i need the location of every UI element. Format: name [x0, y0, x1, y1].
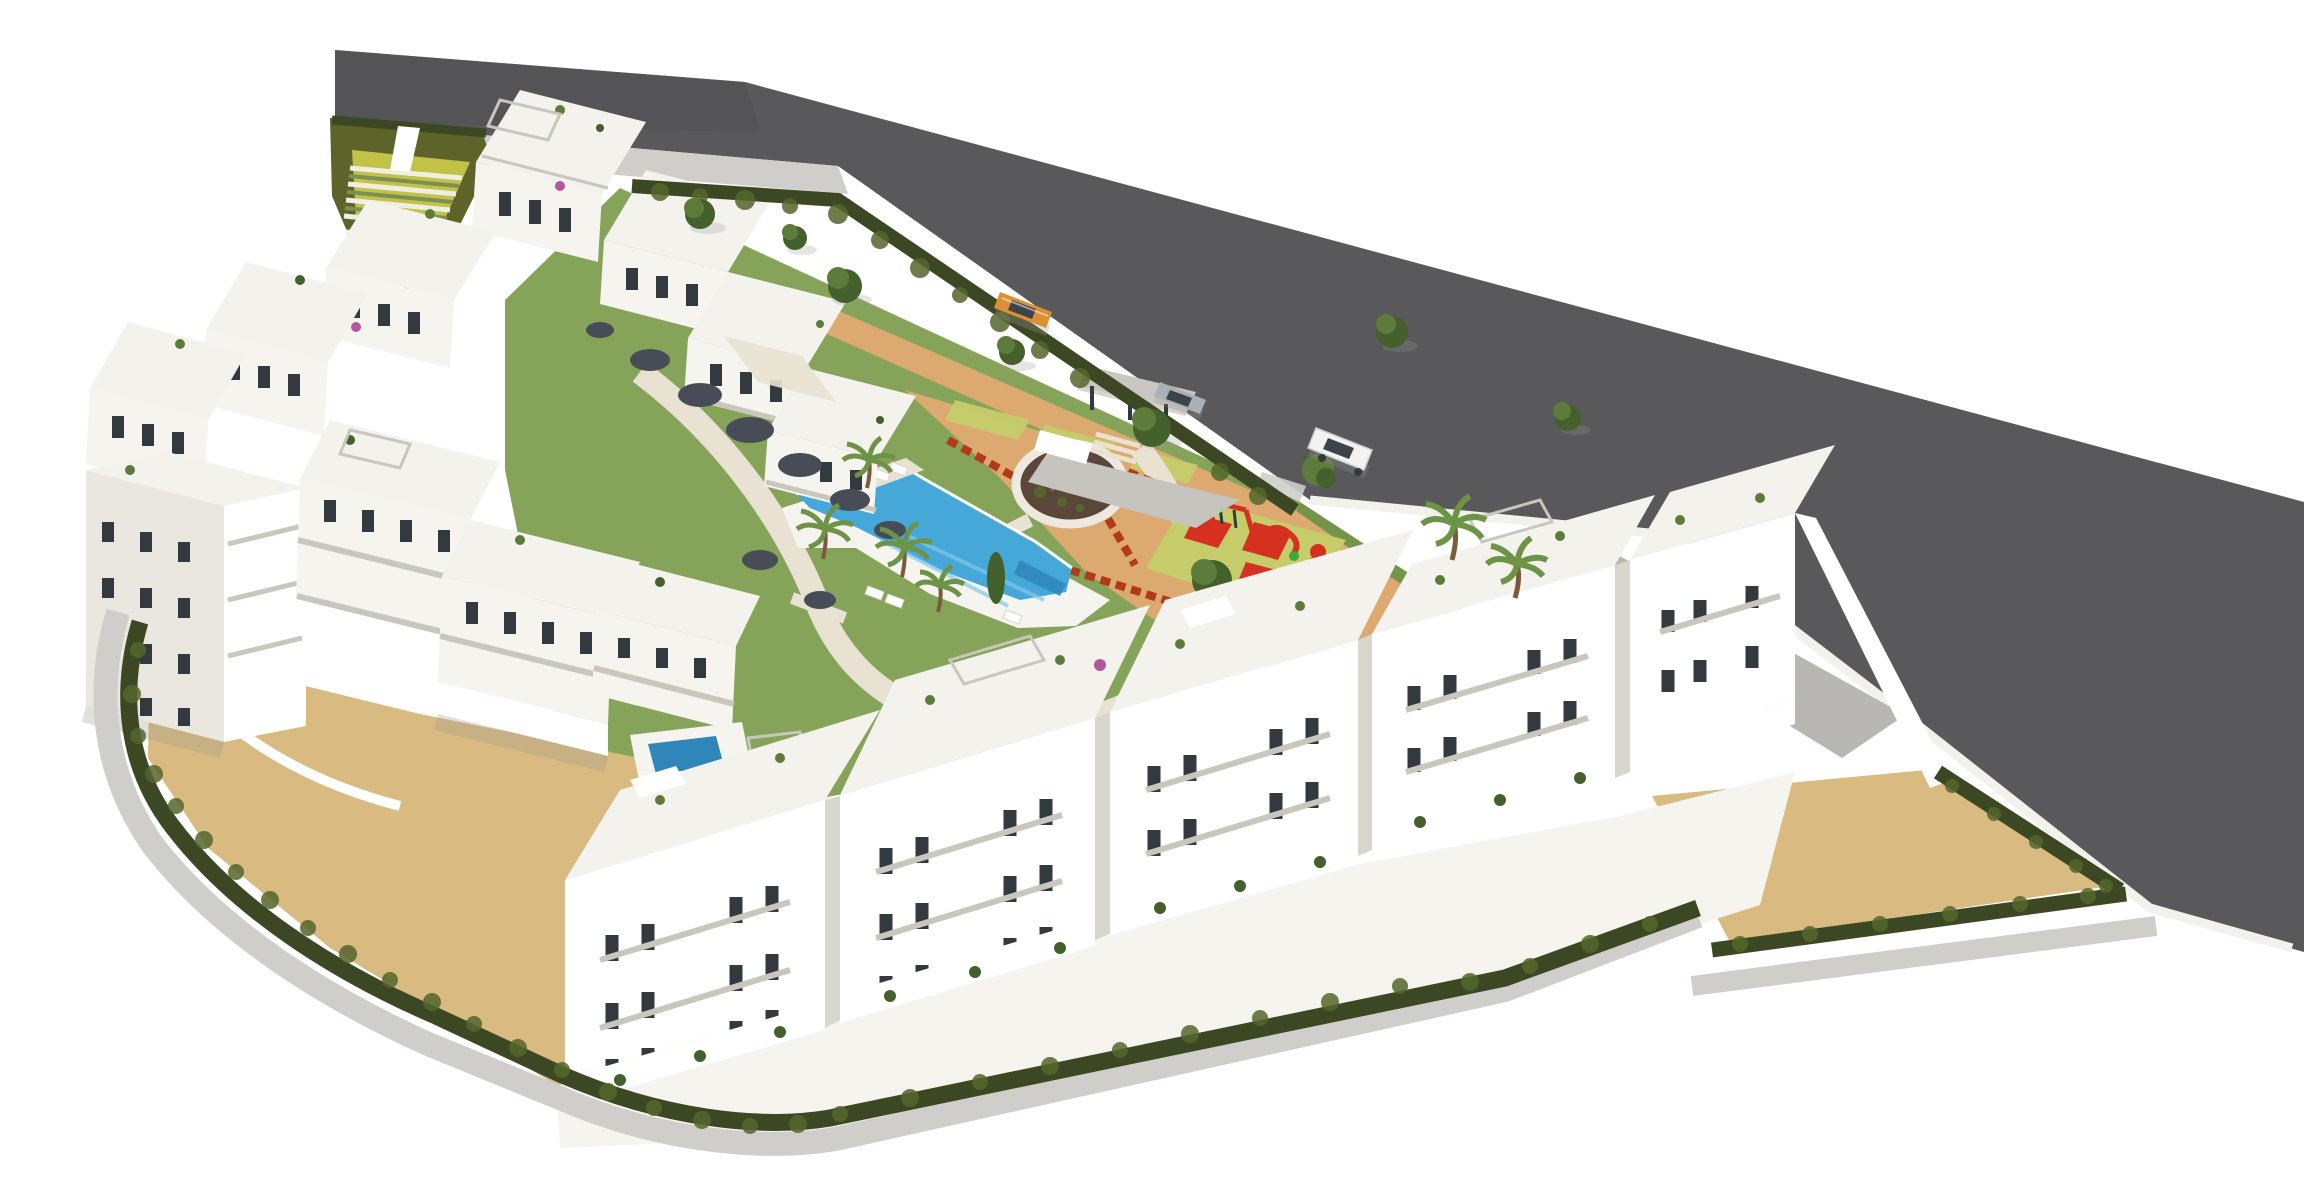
cypress-tree: [987, 552, 1005, 604]
court-de: [1615, 560, 1630, 778]
court-bc: [1095, 712, 1110, 940]
magenta-plant-1: [351, 322, 361, 332]
play-ball: [1289, 551, 1299, 561]
aerial-render: [0, 0, 2304, 1185]
magenta-plant-2: [555, 181, 565, 191]
front-block-d: [1372, 495, 1655, 850]
magenta-plant-3: [1094, 659, 1106, 671]
court-cd: [1358, 634, 1372, 856]
render-canvas: [0, 0, 2304, 1185]
court-ab: [825, 796, 840, 1028]
